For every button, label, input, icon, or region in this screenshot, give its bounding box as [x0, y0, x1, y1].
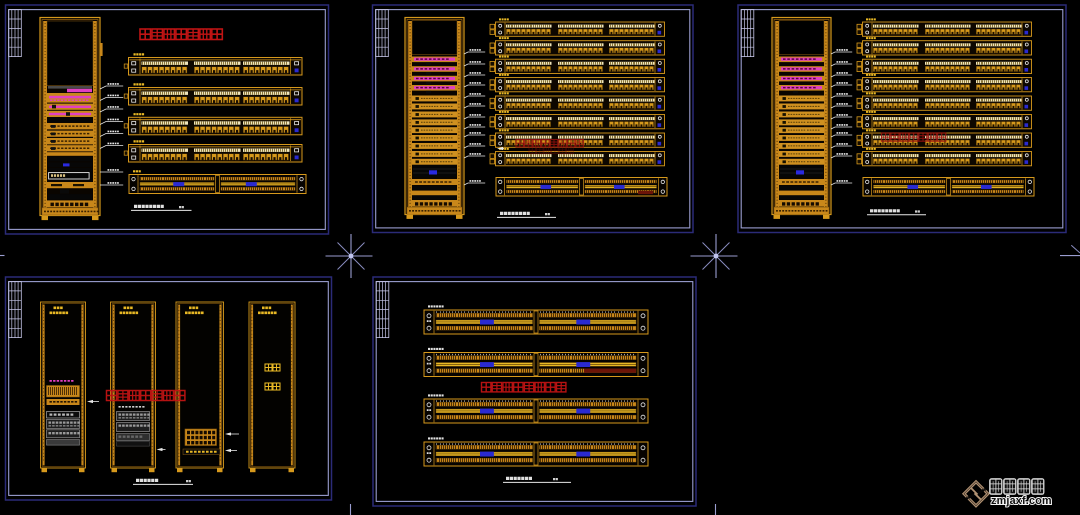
svg-text:zmjaxf.com: zmjaxf.com: [991, 495, 1052, 507]
